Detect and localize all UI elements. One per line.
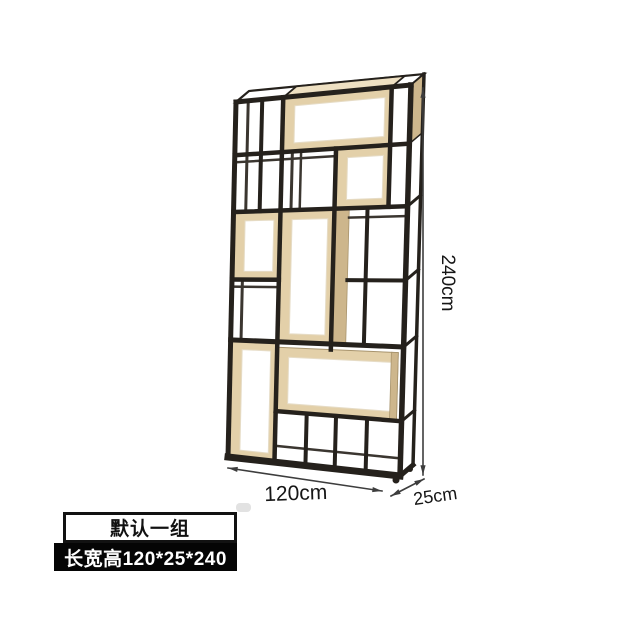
height-dimension-label: 240cm bbox=[437, 254, 458, 311]
variant-badge: 默认一组 bbox=[63, 512, 237, 543]
back-foot bbox=[407, 466, 413, 472]
frame-back-member bbox=[241, 280, 242, 341]
wood-box-interior bbox=[240, 350, 271, 454]
depth-dimension-label: 25cm bbox=[412, 483, 458, 509]
frame-back-member bbox=[275, 446, 401, 459]
frame-member bbox=[305, 414, 306, 466]
frame-back-member bbox=[349, 216, 407, 218]
product-image-canvas: 240cm120cm25cm 默认一组 长宽高120*25*240 bbox=[0, 0, 640, 640]
frame-back-member bbox=[235, 156, 336, 162]
spec-badge-label: 长宽高120*25*240 bbox=[64, 544, 227, 571]
frame-member bbox=[364, 208, 368, 346]
frame-member bbox=[366, 418, 367, 472]
frame-member bbox=[335, 416, 336, 469]
frame-back-member bbox=[300, 151, 301, 210]
arrowhead-icon bbox=[414, 479, 424, 486]
arrowhead-icon bbox=[391, 489, 401, 496]
front-foot bbox=[393, 477, 400, 484]
wood-box-interior bbox=[347, 155, 384, 199]
artifact-smudge bbox=[236, 503, 251, 512]
frame-member bbox=[228, 457, 400, 476]
wood-box-interior bbox=[288, 357, 392, 411]
wood-box-interior bbox=[244, 220, 274, 271]
spec-badge: 长宽高120*25*240 bbox=[54, 543, 237, 571]
frame-back-member bbox=[291, 151, 292, 210]
wood-box-side-panel bbox=[390, 352, 399, 421]
wood-box-interior bbox=[289, 219, 328, 336]
variant-badge-label: 默认一组 bbox=[110, 514, 190, 541]
width-dimension-label: 120cm bbox=[264, 481, 328, 506]
arrowhead-icon bbox=[420, 465, 425, 475]
wood-box-interior bbox=[294, 98, 385, 143]
